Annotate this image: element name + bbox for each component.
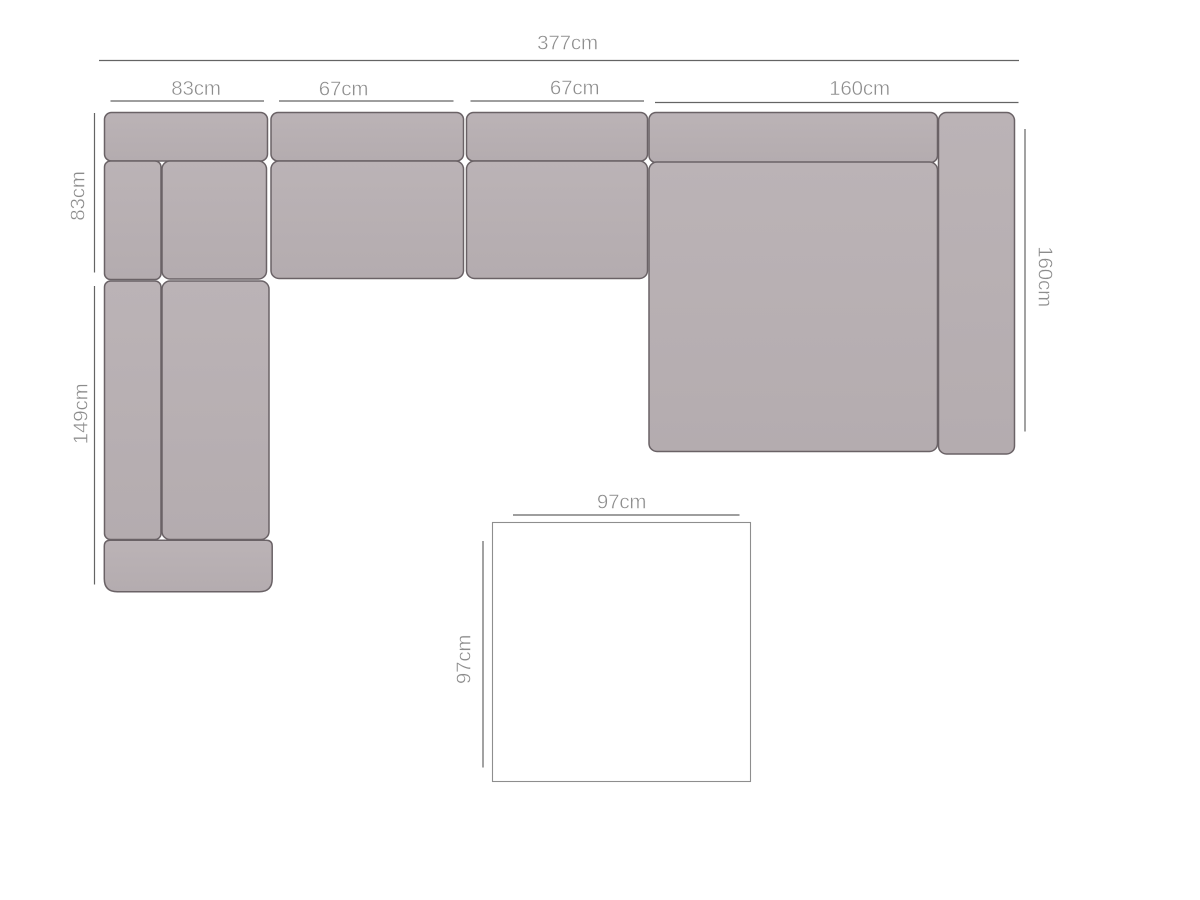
svg-text:67cm: 67cm xyxy=(319,77,369,100)
svg-text:83cm: 83cm xyxy=(171,77,221,100)
svg-text:377cm: 377cm xyxy=(537,31,598,54)
svg-text:67cm: 67cm xyxy=(550,77,600,100)
svg-text:97cm: 97cm xyxy=(597,491,647,514)
svg-text:160cm: 160cm xyxy=(1034,246,1057,307)
svg-text:83cm: 83cm xyxy=(67,171,90,221)
svg-text:97cm: 97cm xyxy=(452,635,475,685)
svg-text:149cm: 149cm xyxy=(69,383,92,444)
svg-text:160cm: 160cm xyxy=(829,77,890,100)
